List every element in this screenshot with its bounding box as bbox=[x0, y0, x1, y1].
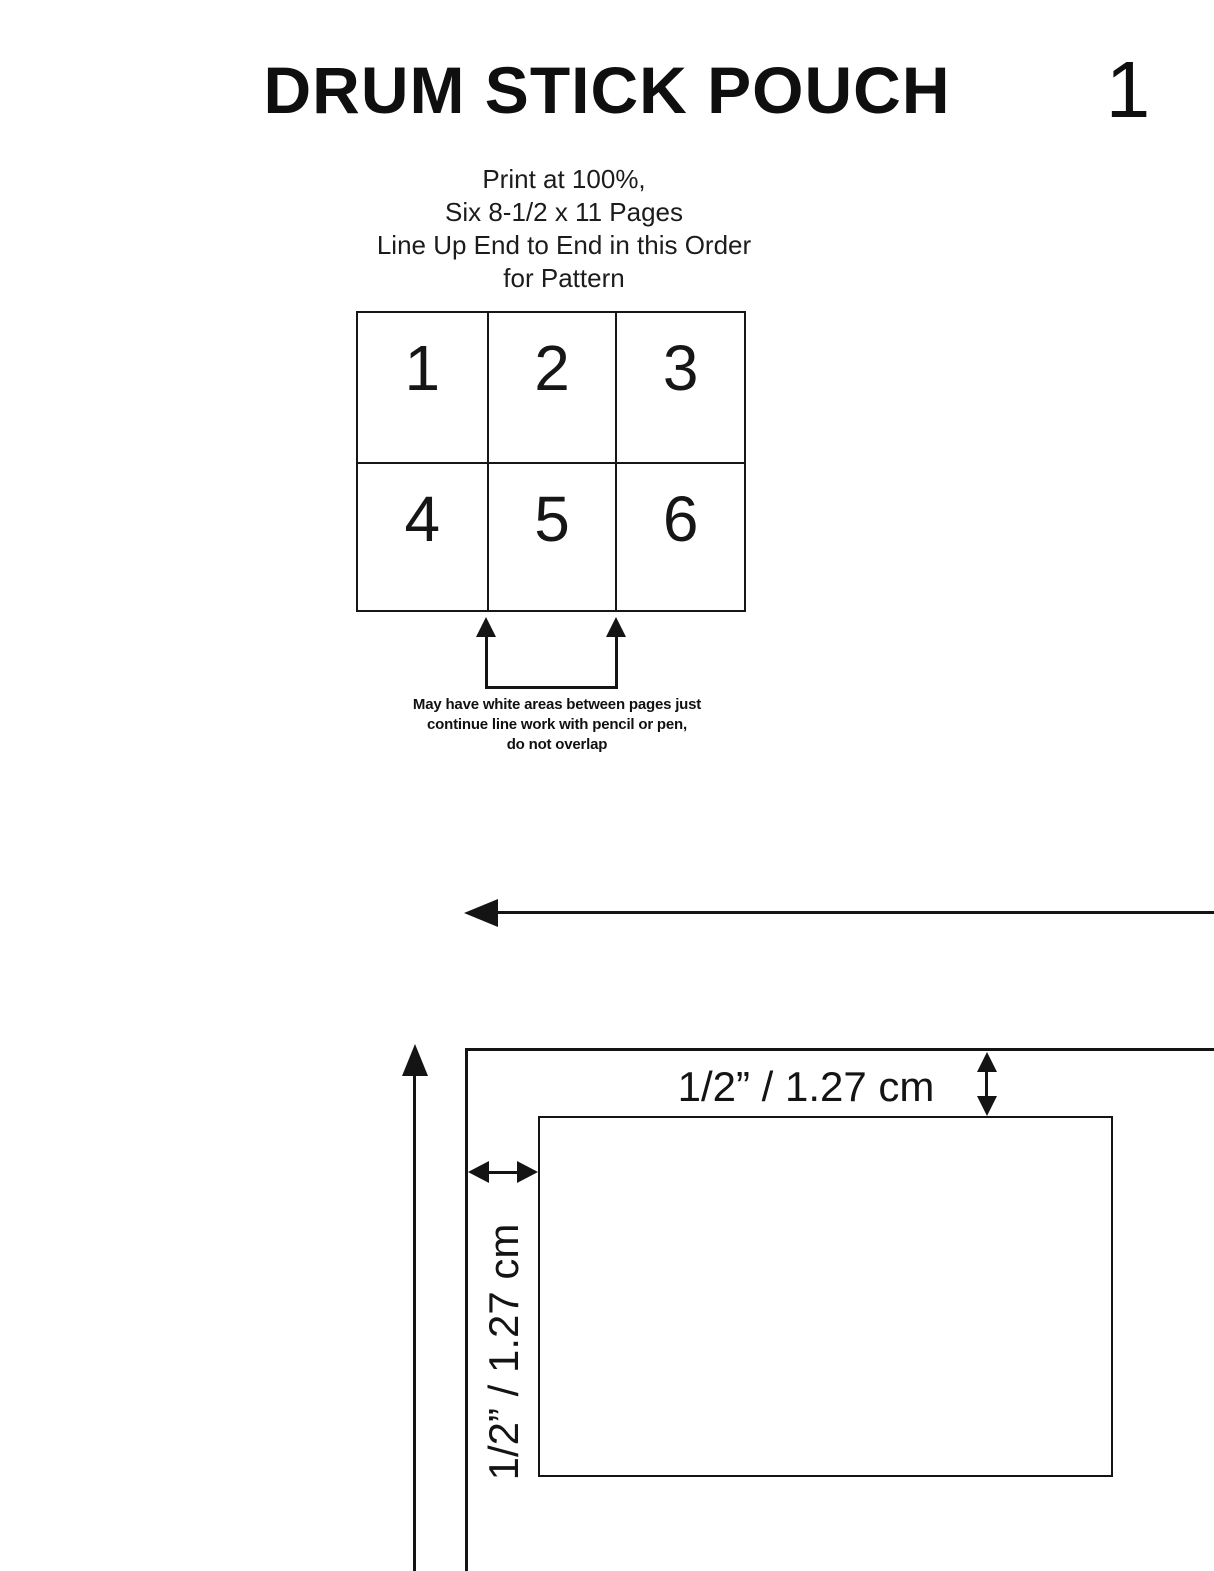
grid-cell: 2 bbox=[487, 313, 616, 462]
left-arrow-line bbox=[494, 911, 1214, 914]
bracket-bottom-line bbox=[485, 686, 618, 689]
double-arrow-down-icon bbox=[977, 1096, 997, 1116]
pattern-page: DRUM STICK POUCH 1 Print at 100%, Six 8-… bbox=[0, 0, 1214, 1571]
left-arrow-icon bbox=[464, 899, 498, 927]
pattern-outer-edge-top bbox=[465, 1048, 1214, 1051]
instruction-line: Print at 100%, bbox=[64, 163, 1064, 196]
instruction-line: for Pattern bbox=[64, 262, 1064, 295]
page-order-grid: 1 2 3 4 5 6 bbox=[356, 311, 746, 612]
note-line: do not overlap bbox=[357, 735, 757, 755]
bracket-right-line bbox=[615, 634, 618, 689]
instruction-line: Line Up End to End in this Order bbox=[64, 229, 1064, 262]
grid-cell: 3 bbox=[615, 313, 744, 462]
instruction-line: Six 8-1/2 x 11 Pages bbox=[64, 196, 1064, 229]
seam-allowance-label-left: 1/2” / 1.27 cm bbox=[483, 1224, 525, 1481]
seam-allowance-label-top: 1/2” / 1.27 cm bbox=[678, 1066, 935, 1108]
note-line: May have white areas between pages just bbox=[357, 695, 757, 715]
print-instructions: Print at 100%, Six 8-1/2 x 11 Pages Line… bbox=[64, 163, 1064, 295]
join-note: May have white areas between pages just … bbox=[357, 695, 757, 755]
grid-cell: 1 bbox=[358, 313, 487, 462]
page-title: DRUM STICK POUCH bbox=[0, 54, 1214, 127]
grid-cell: 5 bbox=[487, 462, 616, 611]
pattern-outer-edge-left bbox=[465, 1048, 468, 1571]
double-arrow-right-icon bbox=[517, 1161, 538, 1183]
grain-arrow-line bbox=[413, 1072, 416, 1571]
grid-cell: 6 bbox=[615, 462, 744, 611]
stitch-line-rectangle bbox=[538, 1116, 1113, 1477]
bracket-left-line bbox=[485, 634, 488, 689]
note-line: continue line work with pencil or pen, bbox=[357, 715, 757, 735]
grid-cell: 4 bbox=[358, 462, 487, 611]
page-number: 1 bbox=[1093, 50, 1163, 130]
